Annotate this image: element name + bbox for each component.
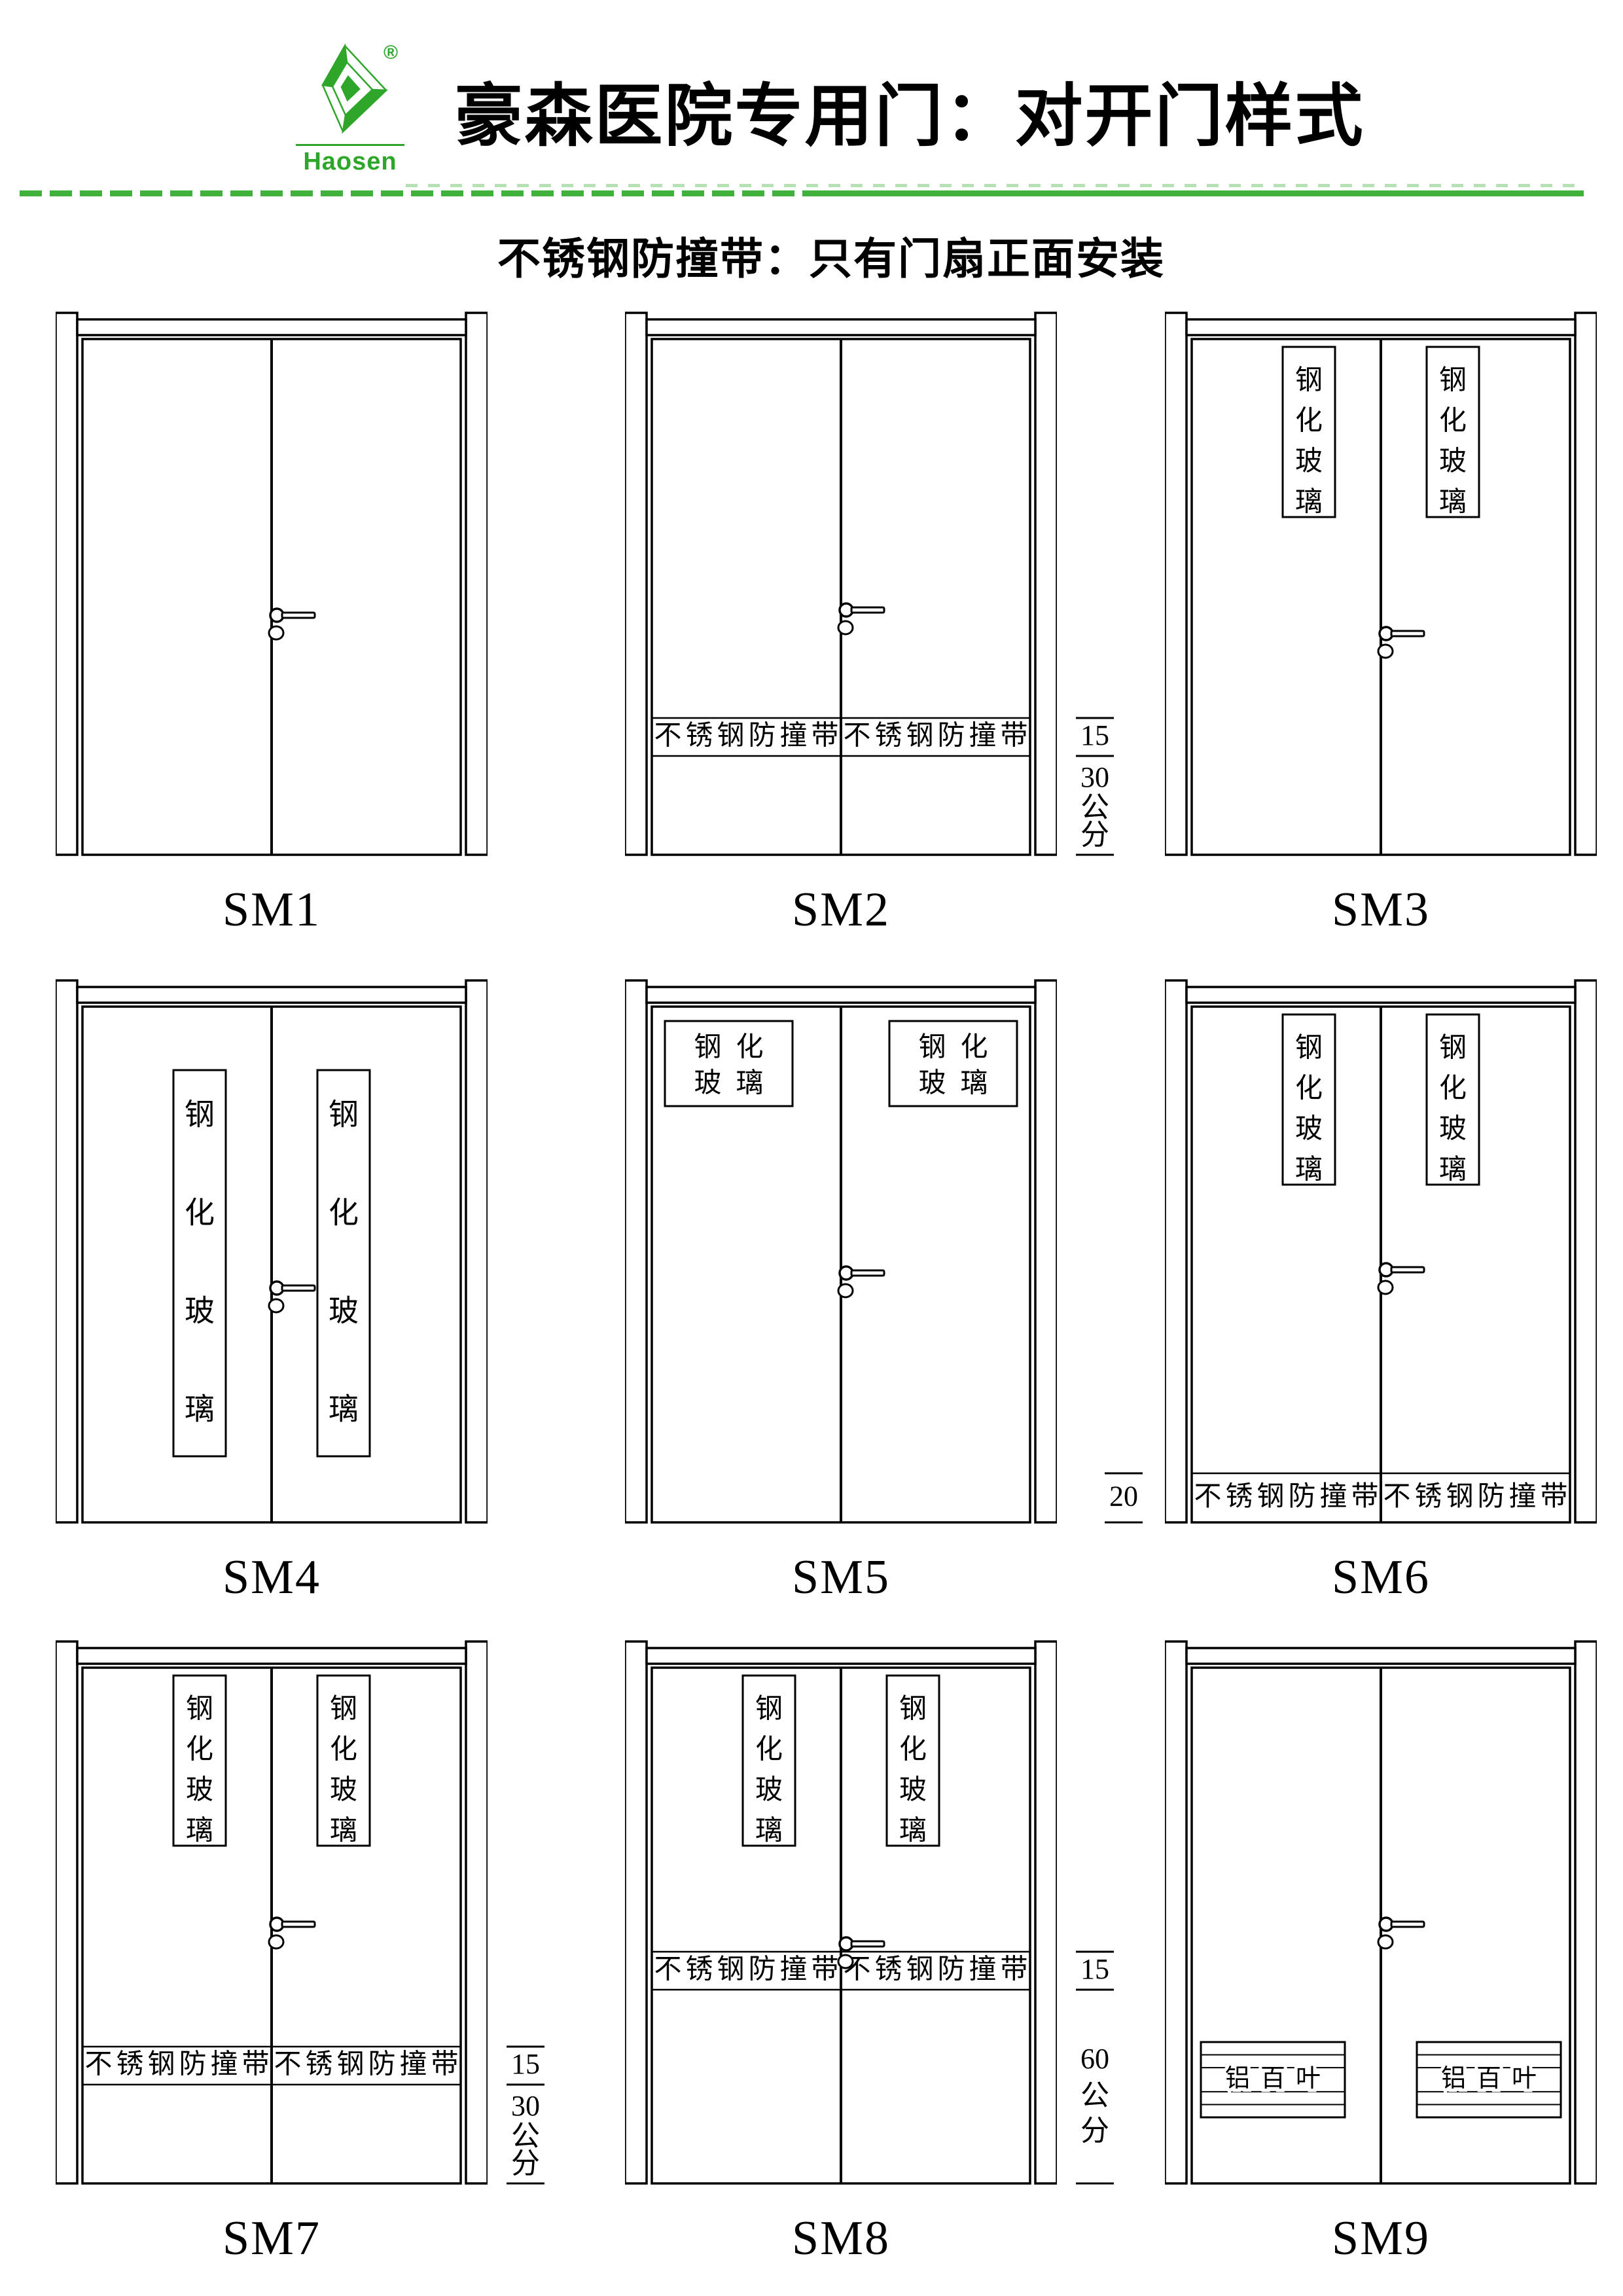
- door-frame-post-left: [1165, 1641, 1186, 2183]
- tempered-glass-label: 玻璃: [918, 1069, 1002, 1099]
- tempered-glass-label: 玻璃: [694, 1069, 777, 1099]
- door-handle-lever-icon: [282, 613, 315, 618]
- bump-strip-label: 不锈钢防撞带: [843, 721, 1031, 751]
- door-diagram-sm4: 钢化玻璃钢化玻璃: [56, 975, 488, 1525]
- tempered-glass-label: 化: [186, 1735, 213, 1765]
- door-lintel: [1186, 1648, 1575, 1664]
- tempered-glass-label: 玻: [1439, 1115, 1467, 1145]
- louver-label: 铝百叶: [1441, 2065, 1547, 2092]
- dimension-value: 分: [1080, 819, 1109, 851]
- door-diagram-sm5: 钢化玻璃钢化玻璃: [625, 975, 1057, 1525]
- door-frame-post-right: [1035, 313, 1057, 855]
- tempered-glass-label: 玻: [185, 1295, 215, 1328]
- door-lock-escutcheon-icon: [269, 626, 283, 639]
- tempered-glass-label: 璃: [186, 1816, 213, 1846]
- tempered-glass-label: 璃: [1295, 1155, 1323, 1185]
- bump-strip-label: 不锈钢防撞带: [654, 1954, 842, 1985]
- door-label: SM8: [625, 2211, 1057, 2267]
- tempered-glass-label: 钢: [755, 1695, 783, 1725]
- door-frame-post-left: [1165, 313, 1186, 855]
- tempered-glass-label: 钢: [329, 1098, 359, 1132]
- door-lintel: [647, 319, 1035, 335]
- tempered-glass-label: 玻: [1295, 447, 1323, 477]
- bump-strip-label: 不锈钢防撞带: [654, 721, 842, 751]
- bump-strip-label: 不锈钢防撞带: [274, 2049, 462, 2080]
- door-frame-post-right: [1575, 1641, 1597, 2183]
- tempered-glass-label: 玻: [330, 1776, 357, 1806]
- page-subtitle: 不锈钢防撞带：只有门扇正面安装: [484, 224, 1178, 287]
- tempered-glass-label: 钢化: [694, 1033, 777, 1063]
- door-frame-post-left: [625, 1641, 647, 2183]
- dimension-value: 15: [1080, 719, 1109, 751]
- door-label: SM9: [1165, 2211, 1597, 2267]
- door-lock-escutcheon-icon: [838, 1284, 853, 1297]
- door-frame-post-right: [1575, 980, 1597, 1522]
- tempered-glass-label: 璃: [755, 1816, 783, 1846]
- door-handle-lever-icon: [851, 607, 884, 613]
- bump-strip-label: 不锈钢防撞带: [1383, 1481, 1571, 1512]
- haosen-logo-icon: [321, 41, 393, 136]
- door-frame-post-right: [466, 980, 488, 1522]
- door-frame-post-left: [625, 980, 647, 1522]
- divider-dashed-left: [20, 190, 818, 196]
- door-frame-post-right: [466, 313, 488, 855]
- door-frame-post-left: [56, 980, 77, 1522]
- dimension-value: 20: [1109, 1480, 1138, 1513]
- door-handle-lever-icon: [282, 1285, 315, 1291]
- door-frame-post-left: [625, 313, 647, 855]
- tempered-glass-label: 璃: [329, 1393, 359, 1426]
- tempered-glass-label: 钢: [1439, 1033, 1467, 1064]
- tempered-glass-label: 化: [899, 1735, 927, 1765]
- door-lintel: [77, 987, 466, 1003]
- page-title: 豪森医院专用门：对开门样式: [445, 60, 1374, 159]
- tempered-glass-label: 化: [1295, 1074, 1323, 1104]
- door-lintel: [1186, 319, 1575, 335]
- tempered-glass-label: 钢: [330, 1695, 357, 1725]
- tempered-glass-label: 璃: [1295, 488, 1323, 518]
- dimension-value: 分: [1080, 2115, 1109, 2147]
- door-lintel: [77, 319, 466, 335]
- dimension-value: 分: [511, 2147, 540, 2179]
- tempered-glass-label: 化: [330, 1735, 357, 1765]
- door-lintel: [1186, 987, 1575, 1003]
- door-frame-post-right: [1575, 313, 1597, 855]
- tempered-glass-label: 钢: [186, 1695, 213, 1725]
- door-label: SM2: [625, 882, 1057, 938]
- dimension-value: 公: [1080, 2079, 1109, 2111]
- door-frame-post-left: [56, 313, 77, 855]
- tempered-glass-label: 璃: [899, 1816, 927, 1846]
- door-lock-escutcheon-icon: [1378, 645, 1393, 658]
- door-lock-escutcheon-icon: [838, 621, 853, 634]
- door-frame-post-right: [466, 1641, 488, 2183]
- tempered-glass-label: 玻: [755, 1776, 783, 1806]
- tempered-glass-label: 钢: [1439, 366, 1467, 396]
- door-lock-escutcheon-icon: [1378, 1281, 1393, 1294]
- door-label: SM7: [56, 2211, 488, 2267]
- tempered-glass-label: 钢: [1295, 1033, 1323, 1064]
- dimension-value: 60: [1080, 2043, 1109, 2075]
- registered-trademark-icon: ®: [383, 42, 398, 64]
- bump-strip-label: 不锈钢防撞带: [1194, 1481, 1382, 1512]
- tempered-glass-label: 化: [1439, 1074, 1467, 1104]
- dimension-value: 30: [511, 2090, 540, 2122]
- door-handle-lever-icon: [1391, 1267, 1424, 1272]
- dimension-annotation: 1530公分: [1073, 308, 1132, 857]
- door-diagram-sm8: 钢化玻璃钢化玻璃不锈钢防撞带不锈钢防撞带: [625, 1636, 1057, 2186]
- door-frame-post-left: [1165, 980, 1186, 1522]
- door-label: SM1: [56, 882, 488, 938]
- tempered-glass-label: 钢: [899, 1695, 927, 1725]
- door-diagram-sm3: 钢化玻璃钢化玻璃: [1165, 308, 1597, 857]
- logo-diamond-face: [342, 77, 359, 100]
- door-handle-lever-icon: [1391, 631, 1424, 636]
- dimension-annotation: 1560公分: [1073, 1636, 1132, 2186]
- door-label: SM4: [56, 1550, 488, 1605]
- tempered-glass-label: 璃: [330, 1816, 357, 1846]
- door-frame-post-left: [56, 1641, 77, 2183]
- tempered-glass-label: 化: [1295, 406, 1323, 437]
- dimension-annotation: 1530公分: [504, 1636, 563, 2186]
- door-lintel: [77, 1648, 466, 1664]
- dimension-value: 15: [1080, 1953, 1109, 1985]
- tempered-glass-label: 化: [755, 1735, 783, 1765]
- logo-diamond-face: [323, 46, 347, 86]
- divider-solid-right: [818, 190, 1584, 196]
- tempered-glass-label: 钢化: [918, 1033, 1002, 1063]
- tempered-glass-label: 化: [329, 1196, 359, 1230]
- tempered-glass-label: 化: [1439, 406, 1467, 437]
- bump-strip-label: 不锈钢防撞带: [843, 1954, 1031, 1985]
- door-diagram-sm9: 铝百叶铝百叶: [1165, 1636, 1597, 2186]
- door-label: SM3: [1165, 882, 1597, 938]
- door-frame-post-right: [1035, 1641, 1057, 2183]
- dimension-annotation: 20: [1086, 975, 1145, 1525]
- door-handle-lever-icon: [282, 1922, 315, 1927]
- tempered-glass-label: 钢: [1295, 366, 1323, 396]
- door-handle-lever-icon: [851, 1941, 884, 1946]
- tempered-glass-label: 玻: [1295, 1115, 1323, 1145]
- tempered-glass-label: 璃: [185, 1393, 215, 1426]
- dimension-value: 15: [511, 2048, 540, 2080]
- door-lintel: [647, 1648, 1035, 1664]
- logo-underline: [296, 144, 404, 146]
- tempered-glass-label: 玻: [329, 1295, 359, 1328]
- tempered-glass-label: 玻: [899, 1776, 927, 1806]
- door-label: SM5: [625, 1550, 1057, 1605]
- door-handle-lever-icon: [851, 1270, 884, 1276]
- door-handle-lever-icon: [1391, 1922, 1424, 1927]
- bump-strip-label: 不锈钢防撞带: [84, 2049, 273, 2080]
- door-diagram-sm7: 钢化玻璃钢化玻璃不锈钢防撞带不锈钢防撞带: [56, 1636, 488, 2186]
- tempered-glass-label: 化: [185, 1196, 215, 1230]
- door-diagram-sm2: 不锈钢防撞带不锈钢防撞带: [625, 308, 1057, 857]
- divider-faint-dashes: [406, 184, 1584, 187]
- door-lintel: [647, 987, 1035, 1003]
- door-label: SM6: [1165, 1550, 1597, 1605]
- door-lock-escutcheon-icon: [1378, 1935, 1393, 1948]
- door-frame-post-right: [1035, 980, 1057, 1522]
- door-lock-escutcheon-icon: [269, 1935, 283, 1948]
- brand-name: Haosen: [288, 148, 412, 176]
- spec-sheet-page: ® Haosen 豪森医院专用门：对开门样式 不锈钢防撞带：只有门扇正面安装 S…: [0, 0, 1623, 2296]
- tempered-glass-label: 钢: [185, 1098, 215, 1132]
- door-diagram-sm6: 钢化玻璃钢化玻璃不锈钢防撞带不锈钢防撞带: [1165, 975, 1597, 1525]
- tempered-glass-label: 璃: [1439, 1155, 1467, 1185]
- dimension-value: 30: [1080, 761, 1109, 793]
- door-lock-escutcheon-icon: [838, 1955, 853, 1968]
- louver-label: 铝百叶: [1225, 2065, 1331, 2092]
- door-diagram-sm1: [56, 308, 488, 857]
- tempered-glass-label: 玻: [1439, 447, 1467, 477]
- door-lock-escutcheon-icon: [269, 1299, 283, 1312]
- tempered-glass-label: 玻: [186, 1776, 213, 1806]
- tempered-glass-label: 璃: [1439, 488, 1467, 518]
